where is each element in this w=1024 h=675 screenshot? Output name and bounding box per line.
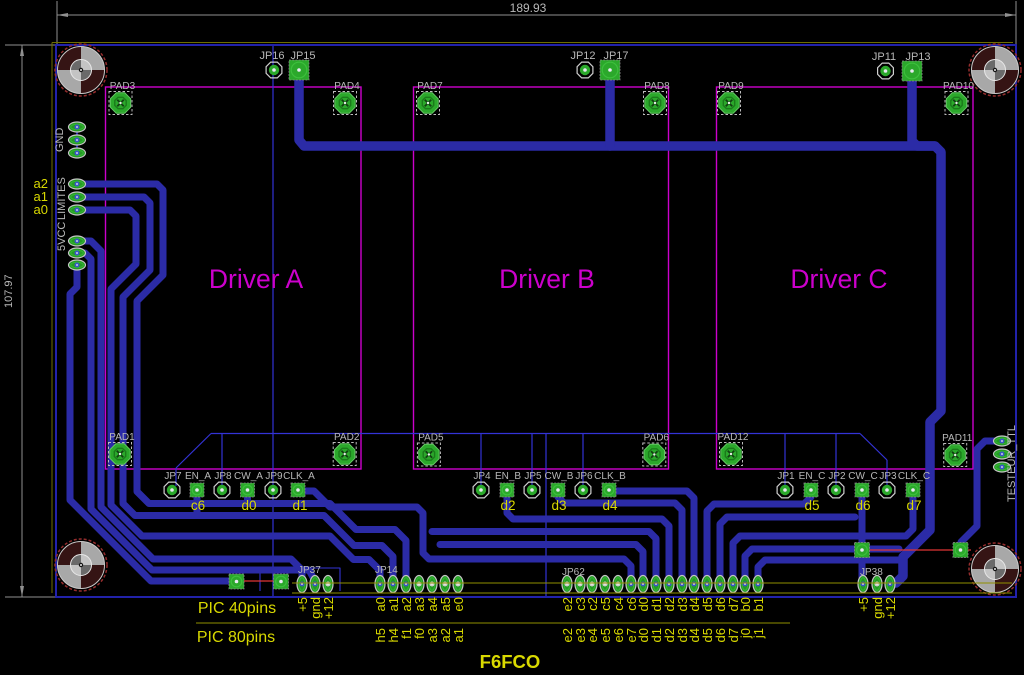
svg-text:JP17: JP17 <box>603 50 628 62</box>
svg-text:JP2: JP2 <box>828 471 846 482</box>
svg-text:JP7: JP7 <box>164 471 182 482</box>
svg-text:TESTEUR_TTL: TESTEUR_TTL <box>1006 425 1018 502</box>
svg-text:JP15: JP15 <box>290 50 315 62</box>
svg-text:JP1: JP1 <box>777 471 795 482</box>
svg-text:d4: d4 <box>602 498 618 513</box>
svg-text:PAD11: PAD11 <box>942 433 973 444</box>
svg-text:PAD12: PAD12 <box>718 432 749 443</box>
svg-text:107.97: 107.97 <box>3 274 15 308</box>
svg-text:JP8: JP8 <box>214 471 232 482</box>
svg-text:Driver B: Driver B <box>499 264 595 294</box>
svg-text:LIMITES: LIMITES <box>56 177 68 220</box>
svg-text:JP6: JP6 <box>575 471 593 482</box>
svg-text:+12: +12 <box>883 597 898 619</box>
svg-text:Driver A: Driver A <box>209 264 304 294</box>
svg-text:d1: d1 <box>292 498 307 513</box>
svg-text:GND: GND <box>54 128 66 153</box>
svg-text:c6: c6 <box>191 498 205 513</box>
svg-text:d6: d6 <box>855 498 870 513</box>
svg-text:PAD5: PAD5 <box>418 433 444 444</box>
svg-text:+5: +5 <box>856 597 871 612</box>
svg-text:j1: j1 <box>751 628 766 639</box>
svg-text:F6FCO: F6FCO <box>480 651 541 672</box>
svg-text:PIC 40pins: PIC 40pins <box>198 600 276 617</box>
svg-text:a1: a1 <box>451 628 466 642</box>
svg-text:JP62: JP62 <box>562 567 585 578</box>
svg-text:CW_B: CW_B <box>545 471 574 482</box>
svg-text:d5: d5 <box>804 498 819 513</box>
svg-text:CLK_C: CLK_C <box>898 471 930 482</box>
svg-text:PIC 80pins: PIC 80pins <box>197 629 275 646</box>
svg-text:189.93: 189.93 <box>510 1 547 15</box>
svg-text:JP4: JP4 <box>473 471 491 482</box>
svg-text:JP5: JP5 <box>524 471 542 482</box>
svg-text:JP11: JP11 <box>872 51 896 63</box>
svg-text:EN_B: EN_B <box>495 471 521 482</box>
svg-text:PAD9: PAD9 <box>718 81 744 92</box>
svg-text:PAD1: PAD1 <box>109 432 135 443</box>
svg-text:PAD2: PAD2 <box>334 432 360 443</box>
svg-text:JP12: JP12 <box>570 50 595 62</box>
svg-text:PAD4: PAD4 <box>334 81 360 92</box>
svg-text:d7: d7 <box>906 498 921 513</box>
svg-text:JP37: JP37 <box>298 565 321 576</box>
svg-text:a0: a0 <box>34 202 48 217</box>
svg-text:JP3: JP3 <box>879 471 897 482</box>
svg-text:EN_C: EN_C <box>799 471 826 482</box>
svg-text:Driver C: Driver C <box>790 264 887 294</box>
svg-text:JP16: JP16 <box>259 50 284 62</box>
svg-text:+12: +12 <box>321 597 336 619</box>
svg-text:JP14: JP14 <box>375 565 398 576</box>
svg-text:b1: b1 <box>751 597 766 611</box>
svg-text:PAD7: PAD7 <box>417 81 443 92</box>
svg-text:PAD10: PAD10 <box>943 81 974 92</box>
svg-text:d2: d2 <box>500 498 515 513</box>
svg-text:e0: e0 <box>451 597 466 611</box>
svg-text:PAD6: PAD6 <box>644 433 670 444</box>
svg-text:PAD8: PAD8 <box>644 81 670 92</box>
svg-text:PAD3: PAD3 <box>110 81 136 92</box>
svg-text:5VCC: 5VCC <box>56 222 68 251</box>
svg-text:CLK_B: CLK_B <box>594 471 626 482</box>
svg-text:CLK_A: CLK_A <box>283 471 315 482</box>
svg-text:d3: d3 <box>551 498 566 513</box>
svg-text:JP38: JP38 <box>860 567 883 578</box>
svg-text:CW_C: CW_C <box>848 471 877 482</box>
svg-text:CW_A: CW_A <box>234 471 263 482</box>
svg-text:JP13: JP13 <box>905 51 930 63</box>
svg-text:d0: d0 <box>241 498 256 513</box>
svg-text:EN_A: EN_A <box>185 471 211 482</box>
svg-text:JP9: JP9 <box>265 471 283 482</box>
